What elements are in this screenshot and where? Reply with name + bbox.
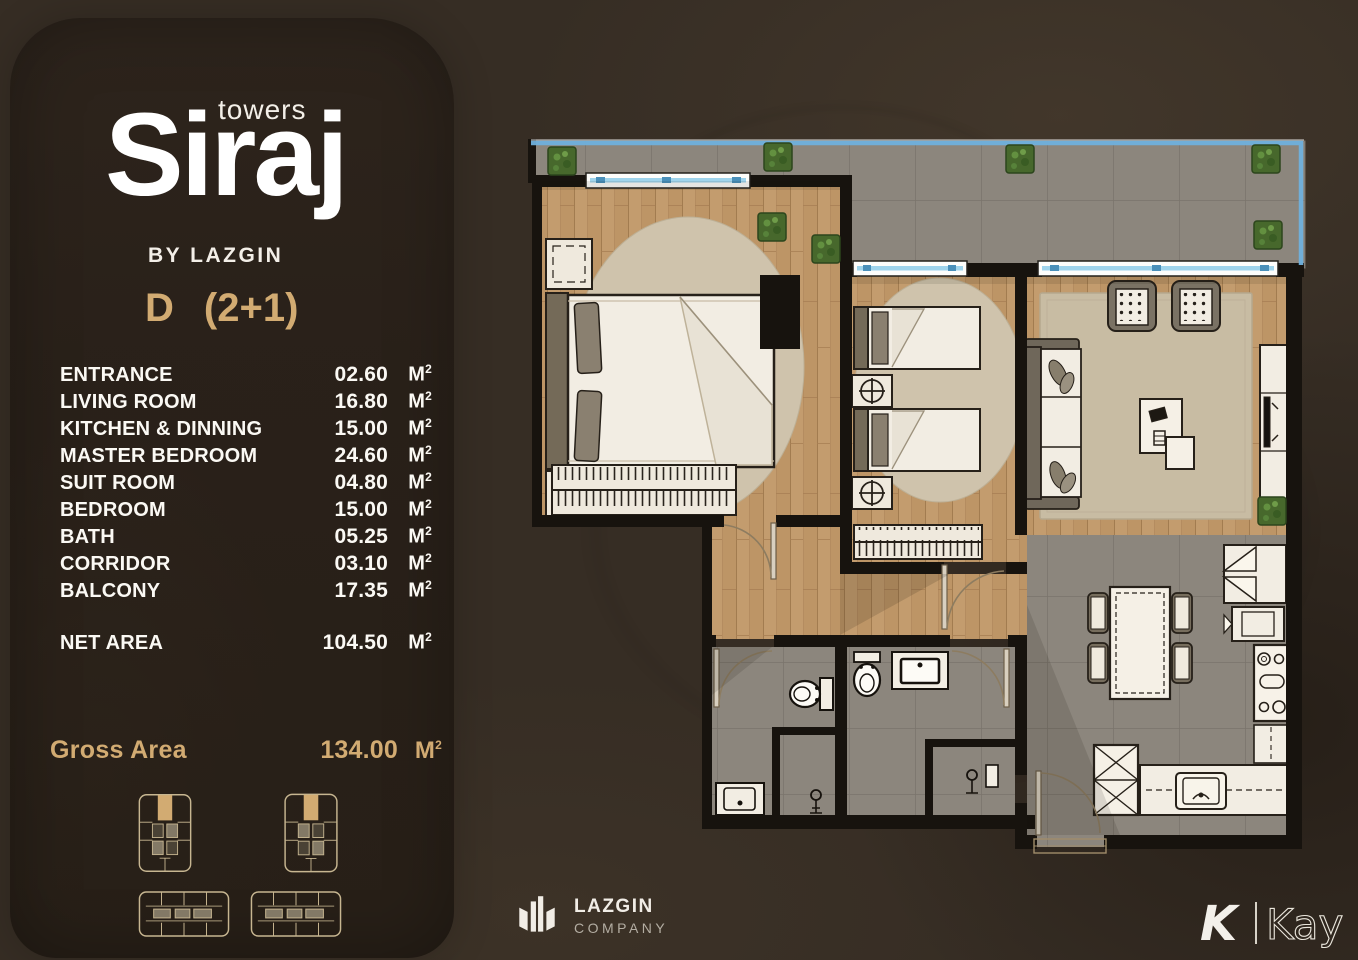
unit-m2: M2 bbox=[388, 362, 432, 387]
unit-m2: M2 bbox=[388, 630, 432, 655]
area-table: ENTRANCE02.60M2 LIVING ROOM16.80M2 KITCH… bbox=[60, 362, 432, 605]
floorplan bbox=[520, 135, 1310, 855]
unit-m2: M2 bbox=[388, 497, 432, 522]
area-row-balcony: BALCONY17.35M2 bbox=[60, 578, 432, 605]
unit-m2: M2 bbox=[398, 737, 442, 765]
poster: towers Siraj BY LAZGIN D(2+1) ENTRANCE02… bbox=[0, 0, 1358, 960]
lazgin-name: LAZGIN bbox=[574, 896, 668, 918]
kay-initial: K bbox=[1200, 896, 1241, 952]
gross-area-row: Gross Area 134.00 M2 bbox=[50, 736, 442, 770]
area-row-kitchen: KITCHEN & DINNING15.00M2 bbox=[60, 416, 432, 443]
unit-m2: M2 bbox=[388, 524, 432, 549]
keyplan-plate-2 bbox=[250, 890, 342, 938]
keyplan-tower-1 bbox=[138, 793, 192, 873]
unit-m2: M2 bbox=[388, 443, 432, 468]
brand-name: Siraj bbox=[105, 82, 346, 230]
area-row-bath: BATH05.25M2 bbox=[60, 524, 432, 551]
area-row-corridor: CORRIDOR03.10M2 bbox=[60, 551, 432, 578]
kay-logo-mark: K Kay bbox=[1198, 892, 1350, 954]
info-panel: towers Siraj BY LAZGIN D(2+1) ENTRANCE02… bbox=[10, 18, 454, 958]
area-row-master-bedroom: MASTER BEDROOM24.60M2 bbox=[60, 443, 432, 470]
living-room-furniture bbox=[1025, 281, 1290, 519]
keyplan-plate-1 bbox=[138, 890, 230, 938]
unit-m2: M2 bbox=[388, 551, 432, 576]
unit-scheme: (2+1) bbox=[204, 286, 299, 330]
kay-logo: K Kay bbox=[1198, 892, 1350, 959]
lazgin-sub: COMPANY bbox=[574, 920, 668, 936]
living-room-window bbox=[1038, 261, 1278, 276]
net-area-row: NET AREA 104.50 M2 bbox=[60, 630, 432, 657]
area-row-suit-room: SUIT ROOM04.80M2 bbox=[60, 470, 432, 497]
dining-table bbox=[1088, 587, 1192, 699]
bedroom-window bbox=[853, 261, 967, 276]
kay-name: Kay bbox=[1266, 900, 1343, 949]
unit-m2: M2 bbox=[388, 470, 432, 495]
master-bedroom-furniture bbox=[546, 217, 804, 521]
unit-title: D(2+1) bbox=[145, 286, 298, 331]
unit-m2: M2 bbox=[388, 416, 432, 441]
lazgin-logo-text: LAZGIN COMPANY bbox=[574, 896, 668, 936]
unit-m2: M2 bbox=[388, 389, 432, 414]
unit-m2: M2 bbox=[388, 578, 432, 603]
lazgin-logo: LAZGIN COMPANY bbox=[512, 893, 668, 939]
area-row-entrance: ENTRANCE02.60M2 bbox=[60, 362, 432, 389]
area-row-living-room: LIVING ROOM16.80M2 bbox=[60, 389, 432, 416]
brand-byline: BY LAZGIN bbox=[148, 244, 283, 268]
keyplan-tower-2 bbox=[282, 793, 340, 873]
unit-code: D bbox=[145, 286, 174, 330]
lazgin-building-icon bbox=[512, 893, 562, 939]
area-row-bedroom: BEDROOM15.00M2 bbox=[60, 497, 432, 524]
